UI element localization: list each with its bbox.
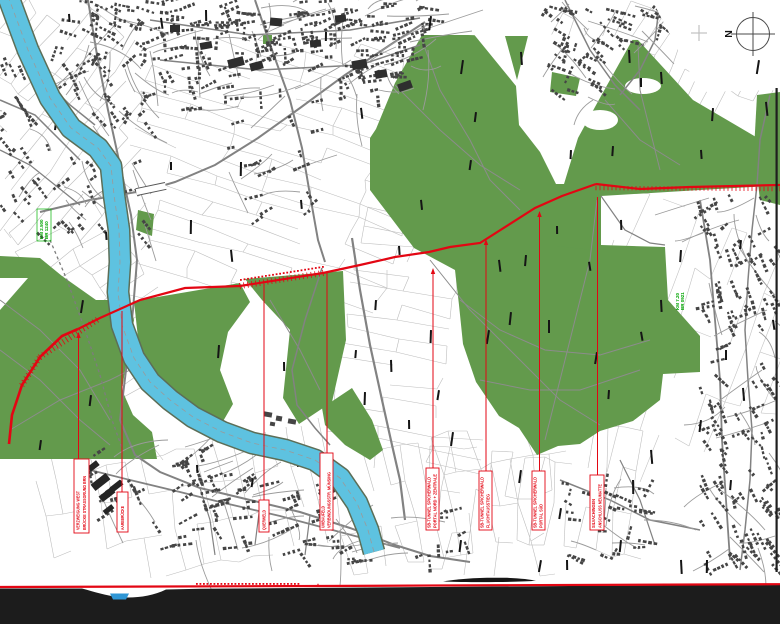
svg-text:AAREBRÜCKE: AAREBRÜCKE — [120, 506, 125, 530]
svg-text:QUERWELD: QUERWELD — [262, 510, 267, 530]
svg-text:FLUCHTAUSSTIEG: FLUCHTAUSSTIEG — [486, 494, 491, 528]
svg-text:SILVACHINGEN: SILVACHINGEN — [591, 499, 596, 528]
svg-text:N: N — [723, 30, 735, 38]
svg-text:PORTAL NORD + ZENTRALE: PORTAL NORD + ZENTRALE — [433, 474, 438, 528]
svg-text:SB-TUNNEL SPICHERWALD: SB-TUNNEL SPICHERWALD — [533, 477, 538, 528]
svg-text:ANSCHLUSS NEUMATTE: ANSCHLUSS NEUMATTE — [597, 484, 602, 528]
svg-text:VERBINDUNGSSTR. MÜNSING: VERBINDUNGSSTR. MÜNSING — [327, 472, 332, 528]
svg-text:SB-TUNNEL SPICHERWALD: SB-TUNNEL SPICHERWALD — [480, 477, 485, 528]
svg-text:BR 0921: BR 0921 — [680, 292, 685, 310]
svg-text:BR 1240: BR 1240 — [44, 221, 49, 239]
svg-text:PORTAL SÜD: PORTAL SÜD — [539, 504, 544, 528]
svg-text:BRÜCKE STRASSGRUND BRN: BRÜCKE STRASSGRUND BRN — [82, 476, 87, 530]
svg-text:UMBAUFELD: UMBAUFELD — [321, 506, 326, 528]
svg-text:SB-TUNNEL SPICHERWALD: SB-TUNNEL SPICHERWALD — [427, 477, 432, 528]
svg-text:VERZWEIGUNG WEST: VERZWEIGUNG WEST — [76, 491, 81, 530]
